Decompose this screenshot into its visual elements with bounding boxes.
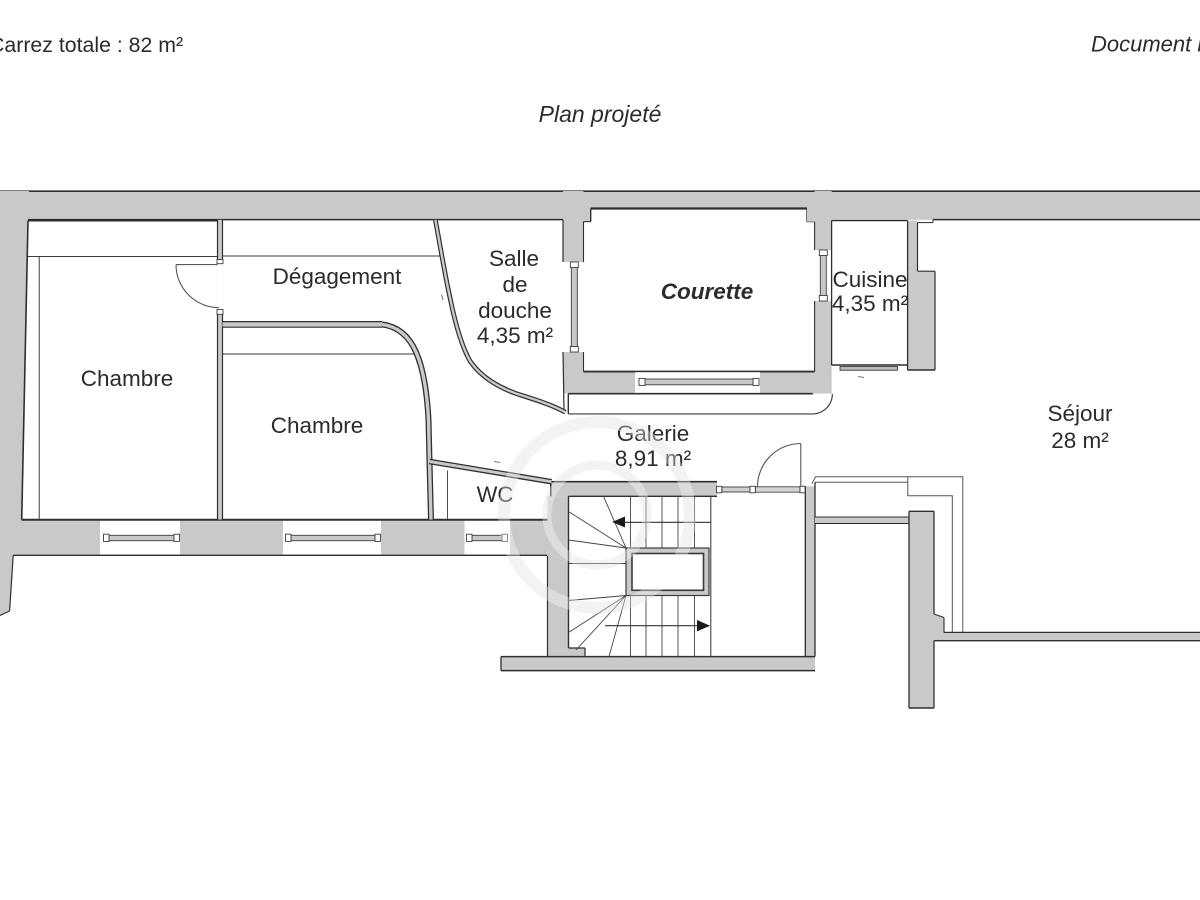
- svg-text:douche: douche: [478, 298, 552, 323]
- svg-text:Chambre: Chambre: [81, 366, 174, 391]
- svg-text:de: de: [502, 272, 527, 297]
- svg-text:4,35 m²: 4,35 m²: [477, 323, 554, 348]
- svg-text:Carrez totale : 82 m²: Carrez totale : 82 m²: [0, 33, 183, 57]
- svg-text:Séjour: Séjour: [1047, 401, 1113, 426]
- svg-text:Courette: Courette: [661, 279, 754, 304]
- svg-text:Dégagement: Dégagement: [273, 264, 403, 289]
- svg-text:Plan projeté: Plan projeté: [539, 101, 662, 127]
- svg-text:Salle: Salle: [489, 246, 539, 271]
- svg-text:4,35 m²: 4,35 m²: [832, 291, 909, 316]
- svg-text:Cuisine: Cuisine: [832, 267, 907, 292]
- svg-text:Chambre: Chambre: [271, 413, 364, 438]
- svg-text:Document non contractuel: Document non contractuel: [1091, 32, 1200, 57]
- svg-text:28 m²: 28 m²: [1051, 428, 1109, 453]
